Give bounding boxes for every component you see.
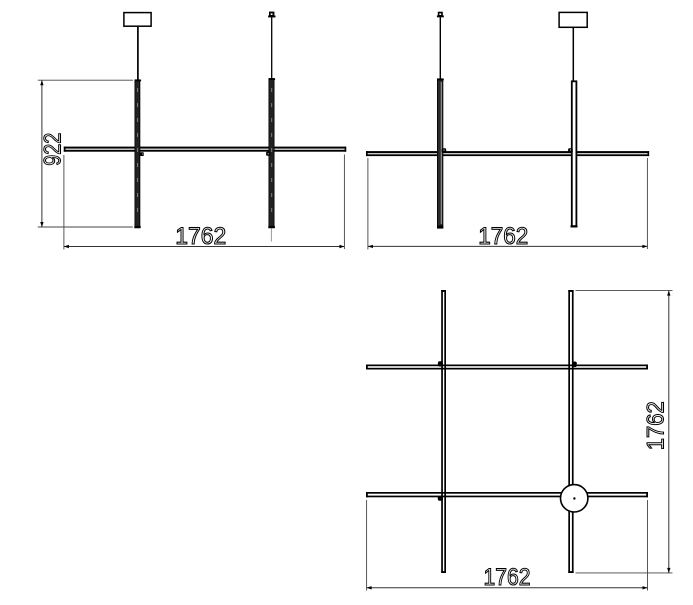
svg-text:1762: 1762 (642, 401, 669, 450)
svg-text:1762: 1762 (175, 223, 226, 250)
svg-text:1762: 1762 (484, 564, 531, 591)
svg-text:922: 922 (40, 133, 67, 166)
svg-text:1762: 1762 (478, 223, 528, 250)
